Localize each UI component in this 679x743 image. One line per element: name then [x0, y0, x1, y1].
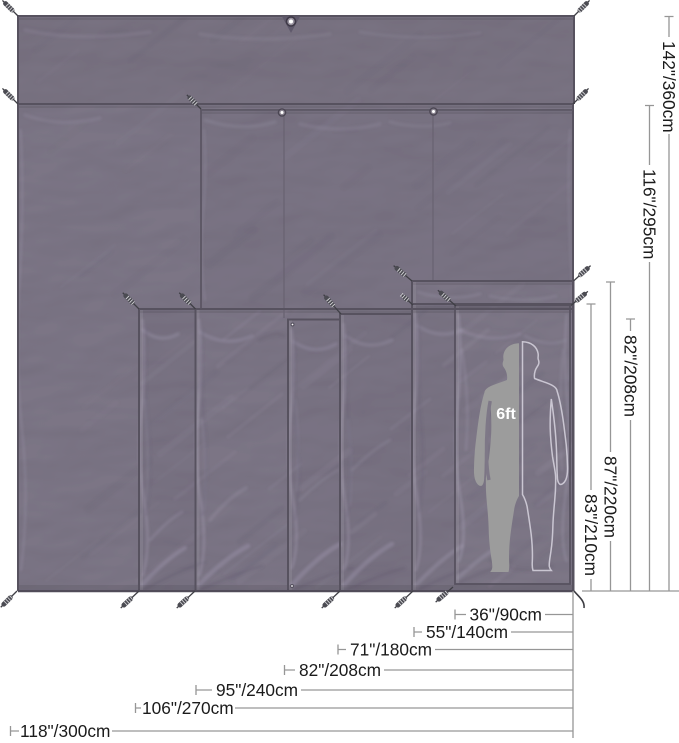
- svg-text:95"/240cm: 95"/240cm: [216, 680, 298, 700]
- svg-text:87"/220cm: 87"/220cm: [601, 456, 621, 538]
- svg-text:116"/295cm: 116"/295cm: [640, 169, 660, 259]
- svg-text:106"/270cm: 106"/270cm: [142, 698, 234, 718]
- svg-text:142"/360cm: 142"/360cm: [659, 41, 679, 133]
- svg-text:71"/180cm: 71"/180cm: [350, 640, 432, 660]
- svg-text:118"/300cm: 118"/300cm: [20, 721, 110, 741]
- svg-text:55"/140cm: 55"/140cm: [426, 622, 508, 642]
- svg-text:82"/208cm: 82"/208cm: [621, 335, 641, 417]
- svg-text:6ft: 6ft: [496, 406, 516, 423]
- svg-text:82"/208cm: 82"/208cm: [299, 660, 381, 680]
- svg-text:83"/210cm: 83"/210cm: [581, 494, 601, 576]
